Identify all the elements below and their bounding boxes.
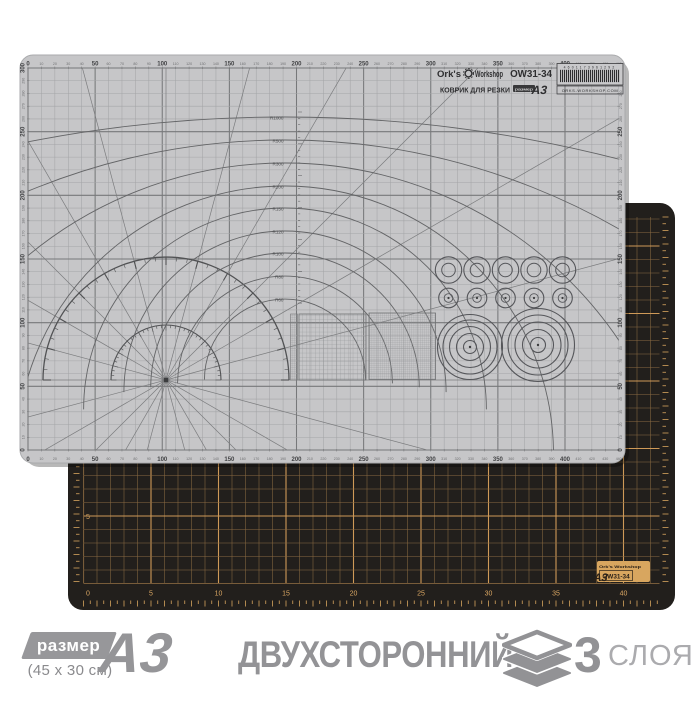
svg-text:150: 150 xyxy=(224,62,235,68)
model-number: OW31-34 xyxy=(510,69,552,80)
svg-text:200: 200 xyxy=(291,457,302,463)
svg-text:110: 110 xyxy=(173,62,179,66)
svg-text:290: 290 xyxy=(22,78,26,84)
svg-text:400: 400 xyxy=(560,457,571,463)
svg-text:390: 390 xyxy=(549,457,555,461)
svg-text:370: 370 xyxy=(522,62,528,66)
product-name: КОВРИК ДЛЯ РЕЗКИ xyxy=(440,86,510,95)
svg-text:20: 20 xyxy=(350,591,358,598)
svg-text:310: 310 xyxy=(441,62,447,66)
svg-text:230: 230 xyxy=(334,457,340,461)
product-image: 05101520253035405 Ork's Workshop OW31-34… xyxy=(0,0,699,700)
svg-text:130: 130 xyxy=(200,62,206,66)
svg-text:50: 50 xyxy=(21,382,27,389)
svg-text:40: 40 xyxy=(22,397,26,401)
svg-text:90: 90 xyxy=(147,457,151,461)
svg-text:360: 360 xyxy=(508,62,514,66)
medium-grid-patch xyxy=(299,314,366,380)
svg-text:370: 370 xyxy=(522,457,528,461)
a3-logo-small: A3 xyxy=(530,83,548,97)
svg-text:180: 180 xyxy=(267,62,273,66)
svg-text:20: 20 xyxy=(53,62,57,66)
svg-text:380: 380 xyxy=(535,62,541,66)
svg-text:300: 300 xyxy=(426,457,437,463)
svg-text:310: 310 xyxy=(441,457,447,461)
svg-text:240: 240 xyxy=(347,62,353,66)
barcode-digits: 4601173961292 xyxy=(564,66,617,70)
svg-text:120: 120 xyxy=(186,62,192,66)
svg-text:260: 260 xyxy=(374,457,380,461)
svg-text:440: 440 xyxy=(616,457,622,461)
svg-text:R150: R150 xyxy=(273,207,284,212)
svg-text:150: 150 xyxy=(21,253,27,264)
layers-count: 3 xyxy=(574,626,602,684)
svg-text:30: 30 xyxy=(66,62,70,66)
svg-text:350: 350 xyxy=(493,62,504,68)
svg-text:190: 190 xyxy=(280,62,286,66)
svg-text:R80: R80 xyxy=(275,275,284,280)
svg-text:110: 110 xyxy=(173,457,179,461)
svg-text:120: 120 xyxy=(186,457,192,461)
svg-text:150: 150 xyxy=(618,253,624,264)
svg-text:20: 20 xyxy=(53,457,57,461)
black-mat-badge: Ork's Workshop OW31-34 A3 xyxy=(592,561,650,584)
a3-format-logo: A3 xyxy=(97,620,176,686)
svg-text:R500: R500 xyxy=(273,139,284,144)
svg-text:190: 190 xyxy=(280,457,286,461)
svg-text:0: 0 xyxy=(86,591,90,598)
svg-text:70: 70 xyxy=(120,457,124,461)
svg-text:R60: R60 xyxy=(275,298,284,303)
svg-text:80: 80 xyxy=(133,457,137,461)
svg-text:30: 30 xyxy=(22,410,26,414)
svg-text:5: 5 xyxy=(149,591,153,598)
svg-text:230: 230 xyxy=(334,62,340,66)
layers-word: СЛОЯ xyxy=(608,640,694,673)
svg-text:280: 280 xyxy=(401,62,407,66)
svg-text:410: 410 xyxy=(575,457,581,461)
svg-text:300: 300 xyxy=(426,62,437,68)
website-url: ORKS-WORKSHOP.COM xyxy=(562,88,619,93)
svg-text:15: 15 xyxy=(282,591,290,598)
svg-text:30: 30 xyxy=(66,457,70,461)
svg-text:250: 250 xyxy=(21,126,27,137)
svg-text:140: 140 xyxy=(213,62,219,66)
svg-text:200: 200 xyxy=(291,62,302,68)
svg-text:R1000: R1000 xyxy=(270,116,284,121)
svg-text:210: 210 xyxy=(307,457,313,461)
layers-icon xyxy=(502,628,572,692)
svg-text:360: 360 xyxy=(508,457,514,461)
svg-text:25: 25 xyxy=(417,591,425,598)
svg-text:R300: R300 xyxy=(273,162,284,167)
svg-text:160: 160 xyxy=(22,243,26,249)
svg-text:80: 80 xyxy=(22,346,26,350)
svg-text:90: 90 xyxy=(22,333,26,337)
svg-text:10: 10 xyxy=(39,62,43,66)
svg-text:190: 190 xyxy=(22,205,26,211)
svg-text:110: 110 xyxy=(22,307,26,313)
svg-text:250: 250 xyxy=(359,457,370,463)
svg-text:250: 250 xyxy=(618,126,624,137)
svg-text:40: 40 xyxy=(80,457,84,461)
svg-text:180: 180 xyxy=(267,457,273,461)
svg-text:120: 120 xyxy=(22,294,26,300)
svg-text:30: 30 xyxy=(485,591,493,598)
svg-text:100: 100 xyxy=(21,317,27,328)
barcode: 4601173961292 ORKS-WORKSHOP.COM xyxy=(557,64,623,95)
svg-text:240: 240 xyxy=(22,141,26,147)
svg-text:50: 50 xyxy=(92,457,99,463)
svg-text:100: 100 xyxy=(157,457,168,463)
barcode-bars xyxy=(560,70,620,82)
svg-text:330: 330 xyxy=(468,457,474,461)
fine-grid-patch xyxy=(369,313,436,380)
svg-text:270: 270 xyxy=(22,103,26,109)
svg-text:140: 140 xyxy=(22,269,26,275)
svg-text:20: 20 xyxy=(22,423,26,427)
svg-text:270: 270 xyxy=(387,457,393,461)
svg-text:70: 70 xyxy=(120,62,124,66)
svg-text:35: 35 xyxy=(552,591,560,598)
svg-text:210: 210 xyxy=(22,180,26,186)
fine-hatch-strip xyxy=(291,314,298,380)
size-label: размер xyxy=(37,636,101,656)
svg-text:170: 170 xyxy=(22,231,26,237)
svg-text:270: 270 xyxy=(387,62,393,66)
svg-text:10: 10 xyxy=(39,457,43,461)
brand-word2: Workshop xyxy=(475,69,503,80)
svg-text:160: 160 xyxy=(240,62,246,66)
svg-text:320: 320 xyxy=(455,62,461,66)
svg-text:210: 210 xyxy=(307,62,313,66)
badge-brand: Ork's Workshop xyxy=(599,565,641,569)
svg-text:220: 220 xyxy=(320,457,326,461)
svg-text:330: 330 xyxy=(468,62,474,66)
svg-text:60: 60 xyxy=(107,62,111,66)
svg-text:150: 150 xyxy=(224,457,235,463)
svg-text:160: 160 xyxy=(240,457,246,461)
svg-text:180: 180 xyxy=(22,218,26,224)
svg-text:70: 70 xyxy=(22,359,26,363)
svg-text:430: 430 xyxy=(602,457,608,461)
svg-text:140: 140 xyxy=(213,457,219,461)
svg-text:100: 100 xyxy=(618,317,624,328)
svg-text:170: 170 xyxy=(253,62,259,66)
svg-text:130: 130 xyxy=(22,281,26,287)
svg-text:5: 5 xyxy=(86,514,90,521)
svg-text:130: 130 xyxy=(200,457,206,461)
svg-text:220: 220 xyxy=(22,167,26,173)
svg-text:90: 90 xyxy=(147,62,151,66)
svg-text:250: 250 xyxy=(359,62,370,68)
svg-text:390: 390 xyxy=(549,62,555,66)
footer-captions: размер (45 x 30 см) A3 ДВУХСТОРОННИЙ 3 С… xyxy=(0,620,699,700)
svg-text:R120: R120 xyxy=(273,230,284,235)
svg-text:320: 320 xyxy=(455,457,461,461)
svg-text:220: 220 xyxy=(320,62,326,66)
size-prefix: размер xyxy=(515,87,533,91)
double-sided-label: ДВУХСТОРОННИЙ xyxy=(238,634,513,676)
svg-text:260: 260 xyxy=(374,62,380,66)
cutting-mats-graphic: 05101520253035405 Ork's Workshop OW31-34… xyxy=(0,0,699,700)
svg-text:280: 280 xyxy=(22,90,26,96)
svg-text:280: 280 xyxy=(401,457,407,461)
svg-text:100: 100 xyxy=(157,62,168,68)
svg-text:340: 340 xyxy=(481,457,487,461)
svg-text:290: 290 xyxy=(414,62,420,66)
svg-text:40: 40 xyxy=(620,591,628,598)
badge-a3-logo: A3 xyxy=(592,572,608,584)
svg-text:260: 260 xyxy=(22,116,26,122)
svg-text:R200: R200 xyxy=(273,185,284,190)
svg-text:R100: R100 xyxy=(273,252,284,257)
svg-text:200: 200 xyxy=(618,190,624,201)
svg-text:10: 10 xyxy=(215,591,223,598)
svg-text:350: 350 xyxy=(493,457,504,463)
svg-text:340: 340 xyxy=(481,62,487,66)
svg-text:420: 420 xyxy=(589,457,595,461)
svg-text:80: 80 xyxy=(133,62,137,66)
brand-word1: Ork's xyxy=(437,69,461,80)
svg-text:300: 300 xyxy=(21,62,27,73)
svg-text:10: 10 xyxy=(22,435,26,439)
svg-text:240: 240 xyxy=(347,457,353,461)
svg-text:170: 170 xyxy=(253,457,259,461)
svg-text:290: 290 xyxy=(414,457,420,461)
svg-text:50: 50 xyxy=(92,62,99,68)
svg-text:60: 60 xyxy=(107,457,111,461)
svg-text:380: 380 xyxy=(535,457,541,461)
svg-text:230: 230 xyxy=(22,154,26,160)
svg-text:40: 40 xyxy=(80,62,84,66)
svg-text:200: 200 xyxy=(21,190,27,201)
svg-text:50: 50 xyxy=(618,382,624,389)
svg-text:60: 60 xyxy=(22,372,26,376)
